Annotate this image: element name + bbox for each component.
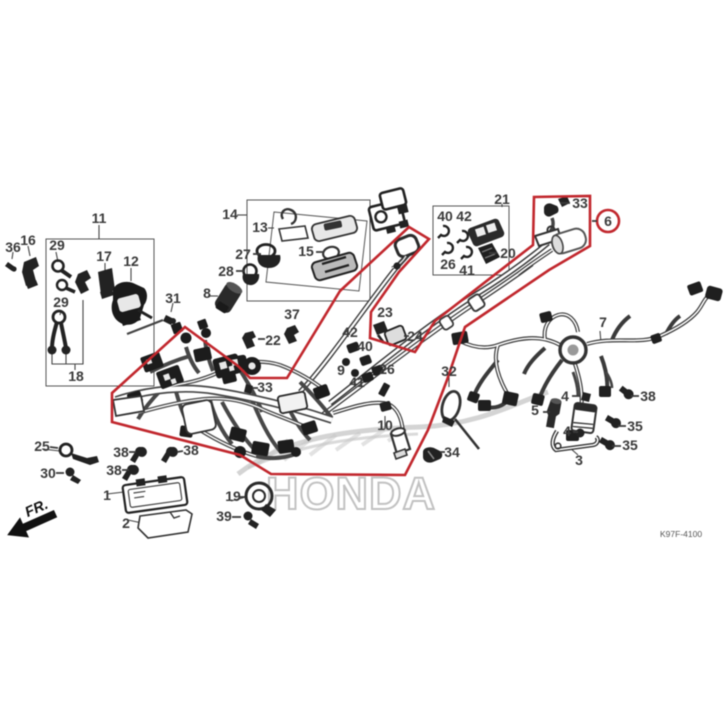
- svg-text:36: 36: [5, 239, 21, 255]
- svg-text:19: 19: [225, 488, 241, 504]
- svg-text:20: 20: [500, 245, 516, 261]
- svg-text:15: 15: [298, 243, 314, 259]
- svg-text:38: 38: [106, 462, 122, 478]
- svg-text:38: 38: [640, 388, 656, 404]
- svg-text:10: 10: [377, 417, 393, 433]
- svg-text:23: 23: [377, 304, 393, 320]
- svg-text:12: 12: [123, 253, 139, 269]
- svg-text:33: 33: [257, 379, 273, 395]
- svg-text:39: 39: [216, 508, 232, 524]
- svg-text:21: 21: [494, 191, 510, 207]
- svg-text:8: 8: [203, 285, 211, 301]
- svg-text:5: 5: [531, 402, 539, 418]
- svg-text:2: 2: [122, 515, 130, 531]
- svg-text:13: 13: [252, 219, 268, 235]
- svg-text:14: 14: [222, 206, 238, 222]
- svg-text:6: 6: [604, 213, 612, 229]
- svg-text:4: 4: [561, 388, 569, 404]
- svg-text:35: 35: [627, 418, 643, 434]
- svg-text:35: 35: [622, 437, 638, 453]
- svg-text:17: 17: [96, 248, 112, 264]
- svg-text:16: 16: [20, 232, 36, 248]
- svg-text:29: 29: [53, 294, 69, 310]
- svg-text:32: 32: [441, 363, 457, 379]
- svg-text:26: 26: [440, 256, 456, 272]
- svg-text:40: 40: [437, 208, 453, 224]
- svg-text:24: 24: [407, 328, 423, 344]
- svg-text:18: 18: [68, 368, 84, 384]
- svg-text:25: 25: [34, 438, 50, 454]
- svg-text:26: 26: [379, 361, 395, 377]
- svg-text:4: 4: [563, 423, 571, 439]
- svg-text:11: 11: [92, 210, 107, 226]
- svg-text:40: 40: [357, 338, 373, 354]
- svg-text:33: 33: [572, 195, 588, 211]
- svg-text:38: 38: [113, 444, 129, 460]
- svg-text:22: 22: [265, 332, 281, 348]
- svg-text:9: 9: [337, 362, 345, 378]
- svg-text:3: 3: [575, 452, 583, 468]
- svg-text:K97F-4100: K97F-4100: [660, 529, 702, 539]
- svg-text:41: 41: [459, 262, 475, 278]
- svg-text:38: 38: [183, 442, 199, 458]
- svg-text:30: 30: [40, 465, 56, 481]
- svg-text:28: 28: [218, 263, 234, 279]
- svg-text:42: 42: [342, 324, 358, 340]
- svg-text:1: 1: [103, 487, 111, 503]
- svg-text:31: 31: [165, 290, 181, 306]
- svg-text:41: 41: [349, 374, 365, 390]
- svg-text:34: 34: [444, 444, 460, 460]
- svg-text:27: 27: [235, 246, 251, 262]
- svg-text:42: 42: [456, 208, 472, 224]
- svg-text:29: 29: [49, 237, 65, 253]
- svg-text:7: 7: [599, 314, 607, 330]
- svg-text:37: 37: [284, 306, 300, 322]
